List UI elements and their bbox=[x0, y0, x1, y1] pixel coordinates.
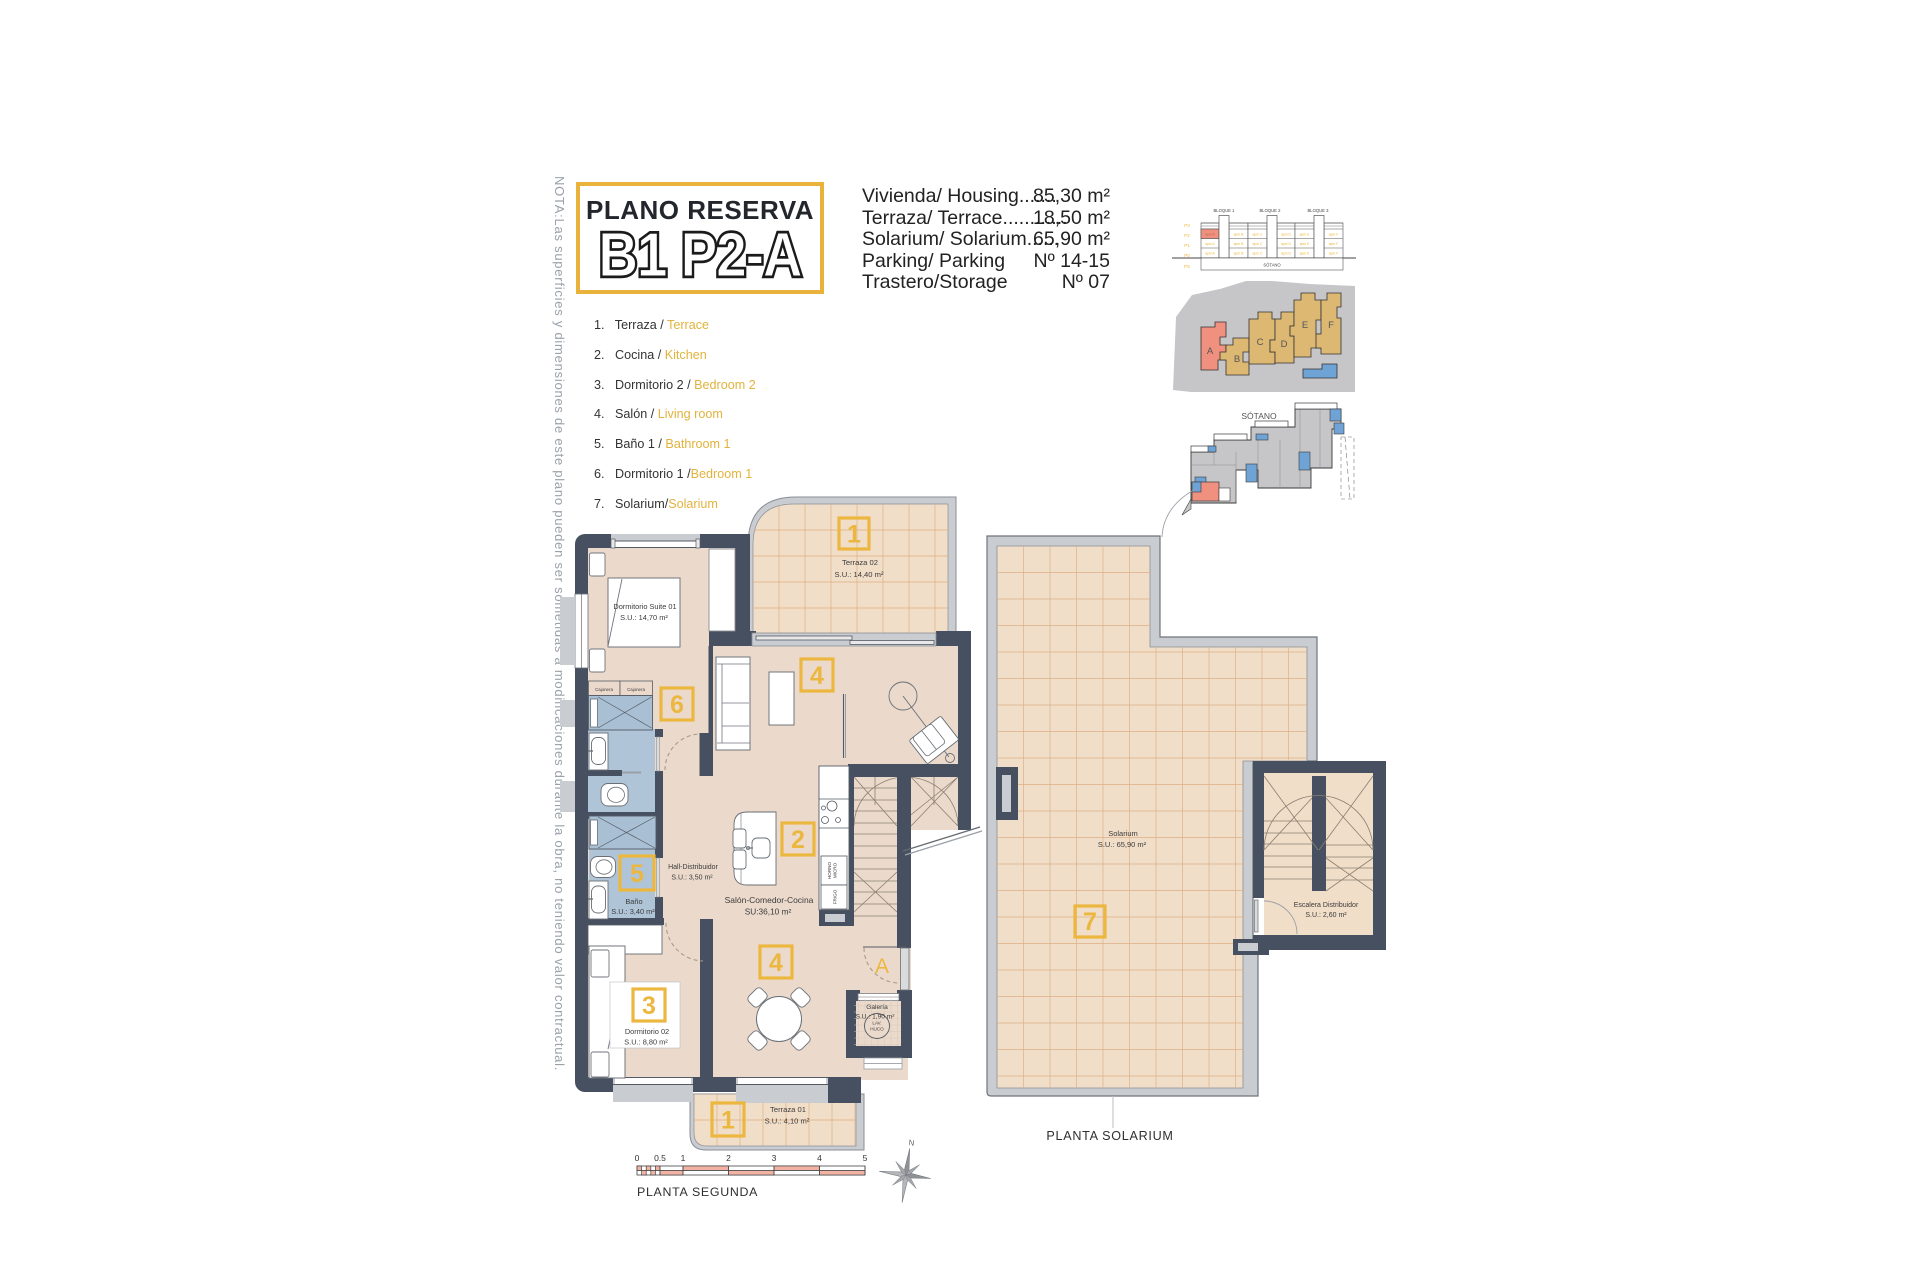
svg-text:Baño: Baño bbox=[625, 897, 642, 906]
svg-text:7: 7 bbox=[1083, 908, 1097, 936]
svg-text:A: A bbox=[875, 955, 889, 978]
svg-text:BLOQUE 3: BLOQUE 3 bbox=[1308, 208, 1330, 213]
svg-text:2: 2 bbox=[726, 1153, 731, 1163]
svg-text:apm A: apm A bbox=[1205, 242, 1215, 246]
svg-text:C: C bbox=[1257, 337, 1264, 348]
svg-text:E: E bbox=[1302, 320, 1308, 331]
svg-text:D: D bbox=[1281, 339, 1288, 350]
svg-text:5: 5 bbox=[630, 860, 644, 888]
svg-text:apm E: apm E bbox=[1300, 232, 1311, 236]
svg-text:apm B: apm B bbox=[1234, 232, 1245, 236]
svg-text:Solarium: Solarium bbox=[1108, 829, 1138, 838]
svg-text:S.U.: 4,10 m²: S.U.: 4,10 m² bbox=[765, 1117, 810, 1126]
svg-text:apm A: apm A bbox=[1205, 233, 1215, 237]
svg-text:BLOQUE 2: BLOQUE 2 bbox=[1260, 208, 1282, 213]
svg-text:P3: P3 bbox=[1184, 223, 1190, 228]
svg-text:S.U.: 8,80 m²: S.U.: 8,80 m² bbox=[624, 1038, 668, 1047]
svg-text:4: 4 bbox=[817, 1153, 822, 1163]
svg-text:apm F: apm F bbox=[1329, 232, 1339, 236]
svg-text:HORNOMICRO: HORNOMICRO bbox=[827, 862, 838, 880]
svg-text:P2: P2 bbox=[1184, 233, 1190, 238]
svg-text:apm A: apm A bbox=[1205, 252, 1215, 256]
svg-text:apm B: apm B bbox=[1234, 252, 1245, 256]
svg-text:Galería: Galería bbox=[866, 1004, 888, 1011]
svg-text:SU:36,10 m²: SU:36,10 m² bbox=[745, 907, 792, 917]
svg-text:S.U.: 3,40 m²: S.U.: 3,40 m² bbox=[611, 907, 655, 916]
svg-text:S.U.: 65,90 m²: S.U.: 65,90 m² bbox=[1098, 840, 1147, 849]
svg-text:Terraza 01: Terraza 01 bbox=[770, 1105, 806, 1114]
svg-text:3: 3 bbox=[642, 992, 656, 1020]
svg-text:2: 2 bbox=[791, 826, 805, 854]
svg-text:N: N bbox=[908, 1138, 915, 1148]
svg-text:SÓTANO: SÓTANO bbox=[1263, 263, 1281, 268]
svg-text:Cajonera: Cajonera bbox=[627, 687, 645, 692]
svg-text:0.5: 0.5 bbox=[654, 1153, 666, 1163]
svg-text:5: 5 bbox=[863, 1153, 868, 1163]
svg-text:S.U.: 2,60 m²: S.U.: 2,60 m² bbox=[1305, 912, 1347, 919]
svg-text:Cajonera: Cajonera bbox=[595, 687, 613, 692]
svg-text:apm D: apm D bbox=[1281, 242, 1292, 246]
svg-text:1: 1 bbox=[721, 1106, 735, 1134]
svg-text:1: 1 bbox=[681, 1153, 686, 1163]
svg-text:3: 3 bbox=[772, 1153, 777, 1163]
svg-text:Salón-Comedor-Cocina: Salón-Comedor-Cocina bbox=[725, 895, 814, 905]
svg-text:Terraza 02: Terraza 02 bbox=[842, 558, 878, 567]
svg-text:SÓTANO: SÓTANO bbox=[1241, 411, 1277, 421]
svg-text:apm C: apm C bbox=[1253, 242, 1264, 246]
svg-text:apm F: apm F bbox=[1329, 242, 1339, 246]
svg-text:apm E: apm E bbox=[1300, 242, 1311, 246]
svg-text:apm C: apm C bbox=[1253, 252, 1264, 256]
svg-text:4: 4 bbox=[810, 662, 824, 690]
svg-text:S.U.: 1,90 m²: S.U.: 1,90 m² bbox=[856, 1014, 896, 1021]
svg-text:PLANTA SOLARIUM: PLANTA SOLARIUM bbox=[1046, 1129, 1173, 1143]
svg-text:4: 4 bbox=[769, 949, 783, 977]
svg-text:F: F bbox=[1328, 320, 1334, 331]
svg-text:6: 6 bbox=[670, 691, 684, 719]
svg-text:Dormitorio 02: Dormitorio 02 bbox=[625, 1027, 669, 1036]
svg-text:S.U.: 14,70 m²: S.U.: 14,70 m² bbox=[620, 613, 668, 622]
svg-text:A: A bbox=[1207, 346, 1214, 357]
svg-text:apm D: apm D bbox=[1281, 252, 1292, 256]
svg-text:apm F: apm F bbox=[1329, 252, 1339, 256]
svg-text:apm B: apm B bbox=[1234, 242, 1245, 246]
svg-text:apm E: apm E bbox=[1300, 252, 1311, 256]
svg-text:PS: PS bbox=[1184, 264, 1190, 269]
svg-text:S.U.: 3,50 m²: S.U.: 3,50 m² bbox=[671, 875, 713, 882]
svg-text:apm C: apm C bbox=[1253, 232, 1264, 236]
svg-text:PLANTA SEGUNDA: PLANTA SEGUNDA bbox=[637, 1185, 758, 1199]
svg-text:FRIGO: FRIGO bbox=[833, 889, 838, 904]
svg-text:0: 0 bbox=[635, 1153, 640, 1163]
svg-text:Dormitorio Suite 01: Dormitorio Suite 01 bbox=[613, 602, 676, 611]
svg-text:P0: P0 bbox=[1184, 253, 1190, 258]
svg-text:LAV.: LAV. bbox=[872, 1021, 881, 1026]
svg-text:BLOQUE 1: BLOQUE 1 bbox=[1214, 208, 1236, 213]
svg-text:Escalera Distribuidor: Escalera Distribuidor bbox=[1294, 902, 1359, 909]
svg-text:P1: P1 bbox=[1184, 243, 1190, 248]
svg-text:S.U.: 14,40 m²: S.U.: 14,40 m² bbox=[835, 570, 884, 579]
svg-text:apm D: apm D bbox=[1281, 232, 1292, 236]
svg-text:HUCO: HUCO bbox=[870, 1027, 884, 1032]
svg-text:1: 1 bbox=[847, 520, 861, 548]
svg-text:Hall-Distribuidor: Hall-Distribuidor bbox=[668, 864, 718, 871]
svg-text:B: B bbox=[1234, 354, 1240, 365]
